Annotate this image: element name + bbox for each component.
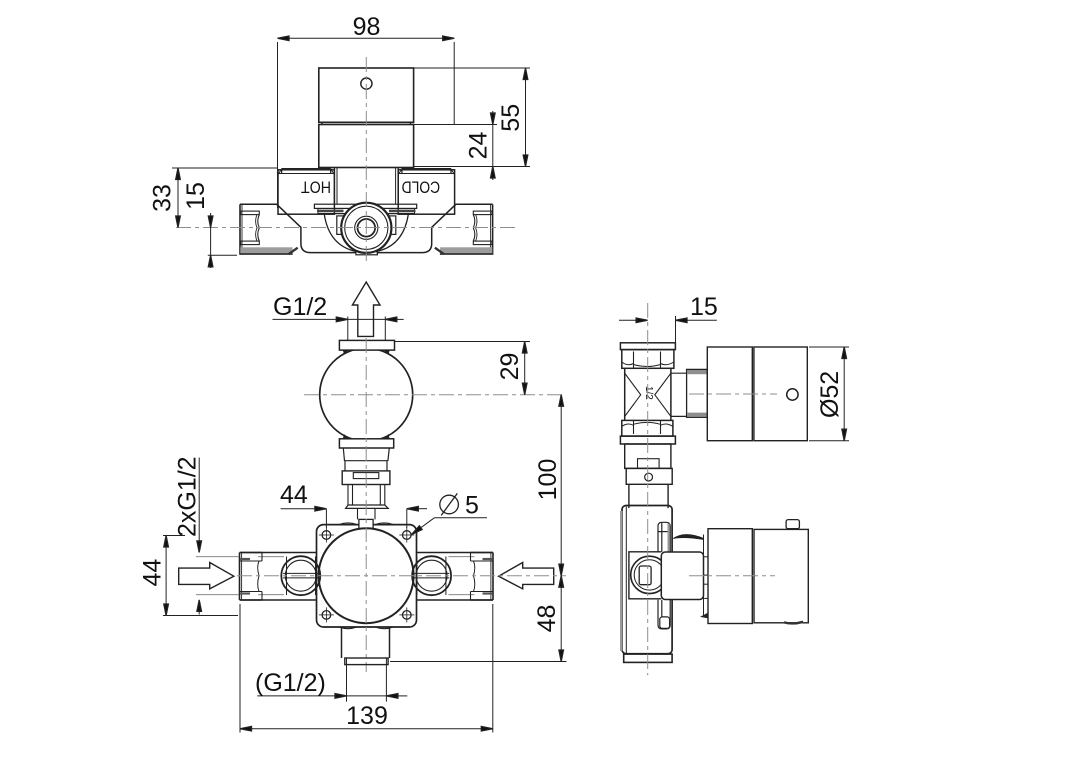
svg-text:44: 44 [280,481,308,509]
svg-text:(G1/2): (G1/2) [255,669,326,697]
svg-text:44: 44 [139,559,167,587]
svg-text:98: 98 [353,13,381,41]
svg-text:5: 5 [465,492,479,520]
svg-text:HOT: HOT [301,178,331,197]
svg-text:G1/2: G1/2 [273,293,327,321]
svg-text:48: 48 [533,605,561,633]
svg-text:2xG1/2: 2xG1/2 [173,456,201,537]
svg-text:15: 15 [182,182,210,210]
svg-text:33: 33 [149,184,177,212]
svg-text:Ø52: Ø52 [816,371,844,418]
svg-text:1/2: 1/2 [643,386,654,400]
svg-text:COLD: COLD [402,178,441,197]
svg-text:24: 24 [465,132,493,160]
svg-text:100: 100 [534,459,562,501]
svg-text:55: 55 [497,104,525,132]
svg-text:15: 15 [690,293,718,321]
svg-text:139: 139 [346,702,388,730]
svg-text:29: 29 [496,353,524,381]
